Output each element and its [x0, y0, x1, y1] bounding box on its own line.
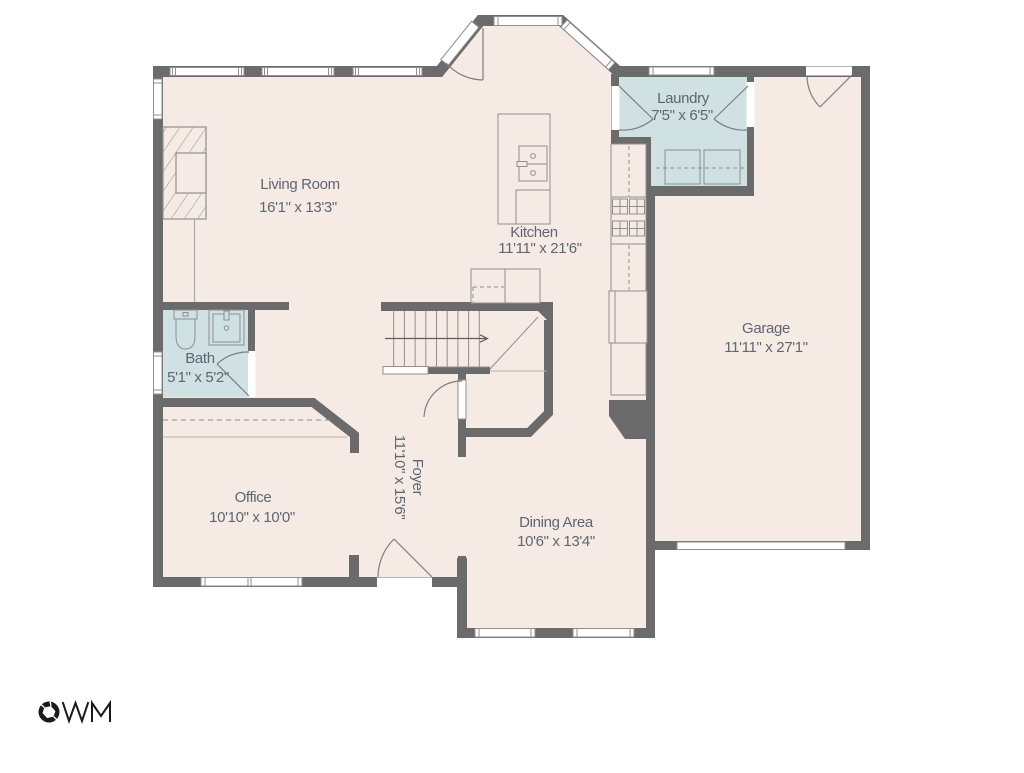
svg-text:Foyer: Foyer — [409, 459, 426, 496]
svg-text:Laundry: Laundry — [657, 90, 710, 107]
svg-text:7'5" x 6'5": 7'5" x 6'5" — [651, 107, 713, 124]
svg-text:11'11" x 21'6": 11'11" x 21'6" — [498, 240, 582, 257]
svg-text:11'11" x 27'1": 11'11" x 27'1" — [724, 339, 808, 356]
svg-text:Dining Area: Dining Area — [519, 514, 594, 531]
svg-text:10'6" x 13'4": 10'6" x 13'4" — [517, 533, 595, 550]
svg-text:5'1" x 5'2": 5'1" x 5'2" — [167, 369, 229, 386]
svg-text:Bath: Bath — [185, 350, 214, 367]
svg-text:Living Room: Living Room — [260, 176, 340, 193]
svg-text:10'10" x 10'0": 10'10" x 10'0" — [209, 509, 295, 526]
svg-text:Garage: Garage — [742, 320, 790, 337]
svg-text:16'1" x 13'3": 16'1" x 13'3" — [259, 199, 337, 216]
svg-text:Kitchen: Kitchen — [510, 224, 558, 241]
svg-text:Office: Office — [235, 489, 272, 506]
svg-text:11'10" x 15'6": 11'10" x 15'6" — [391, 435, 408, 520]
